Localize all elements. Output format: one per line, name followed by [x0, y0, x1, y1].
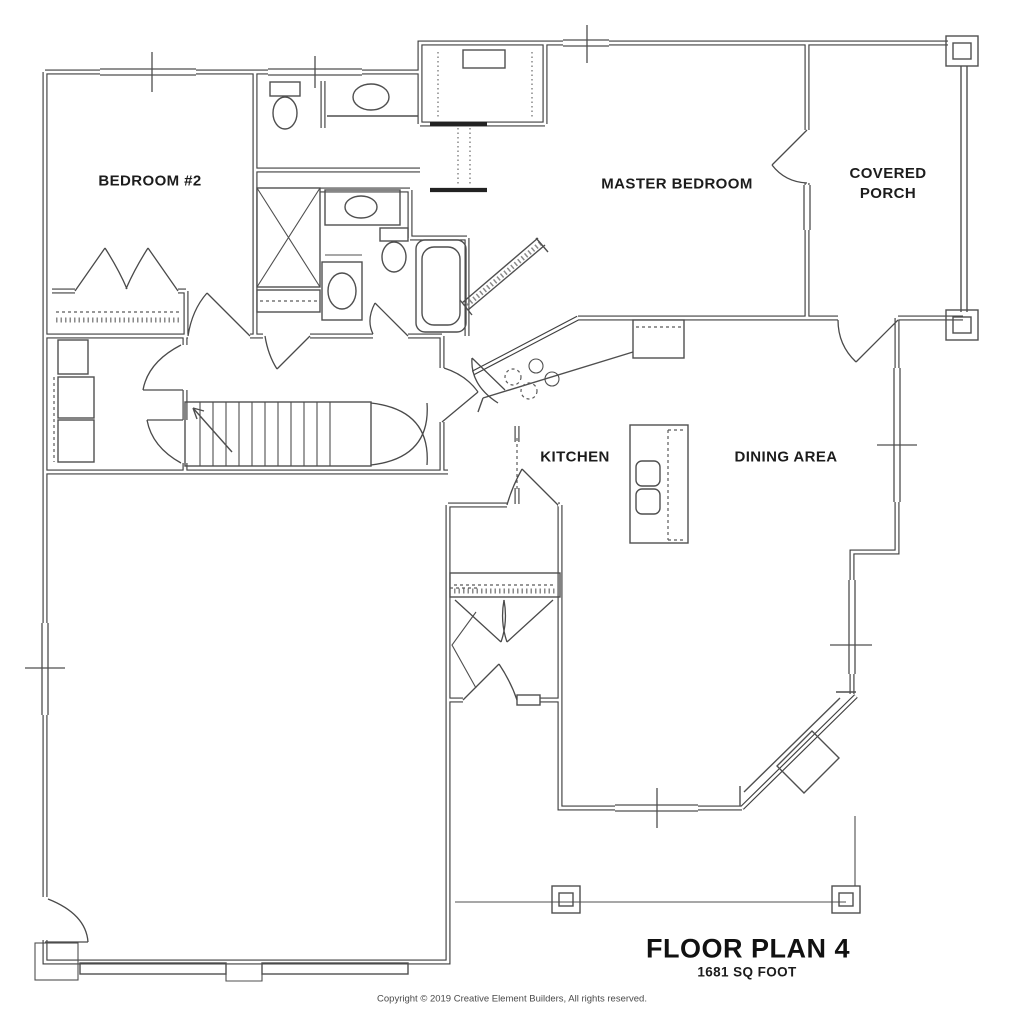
- kitchen-island: [630, 425, 688, 543]
- front-sidelight: [517, 695, 540, 705]
- plan-title: FLOOR PLAN 4: [646, 934, 850, 965]
- room-label-dining-area: DINING AREA: [734, 449, 837, 466]
- porch-posts: [946, 36, 978, 340]
- pocket-doors: [430, 50, 532, 190]
- room-label-master-bedroom: MASTER BEDROOM: [601, 176, 752, 193]
- washer-dryer: [54, 340, 94, 462]
- understair-niche: [450, 588, 478, 688]
- floor-plan-drawing: [0, 0, 1024, 1024]
- room-label-covered-porch: COVERED PORCH: [833, 164, 943, 205]
- coat-closet: [450, 573, 560, 597]
- floor-plan-page: BEDROOM #2 MASTER BEDROOM COVERED PORCH …: [0, 0, 1024, 1024]
- door-swings: [45, 130, 898, 942]
- kitchen-counter: [478, 320, 684, 492]
- room-label-bedroom2: BEDROOM #2: [98, 173, 201, 190]
- copyright-text: Copyright © 2019 Creative Element Builde…: [377, 994, 647, 1005]
- angled-linen-closet: [460, 238, 548, 315]
- patio-posts: [455, 816, 860, 913]
- hall-bath-fixtures: [270, 82, 418, 129]
- fireplace: [740, 692, 856, 806]
- master-bath-fixtures: [257, 188, 466, 332]
- room-label-kitchen: KITCHEN: [540, 449, 609, 466]
- plan-subtitle: 1681 SQ FOOT: [697, 965, 796, 980]
- windows: [25, 25, 917, 828]
- bedroom2-closet: [56, 312, 180, 320]
- staircase: [185, 402, 427, 466]
